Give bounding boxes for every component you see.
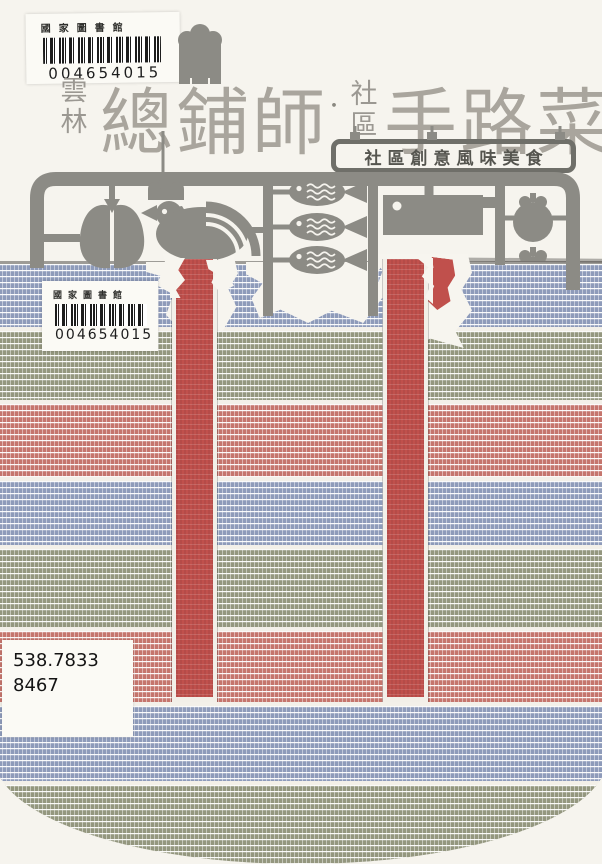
title-mid-char-2: 區: [348, 110, 380, 141]
title-prefix-vertical: 雲 林: [58, 76, 90, 138]
bag-strap-left: [172, 259, 217, 702]
cleaver-icon: [383, 186, 503, 235]
bag-stripe-stack: [0, 264, 602, 864]
subtitle-banner: 社區創意風味美食: [331, 139, 576, 173]
bag-stripe-green: [0, 785, 602, 864]
tomato-icon: [505, 193, 567, 242]
torn-paper-patch: [246, 262, 384, 323]
bag-stripe-blue: [0, 481, 602, 545]
call-number-line-2: 8467: [13, 673, 133, 698]
library-barcode-label-bag: 國家圖書館 004654015: [42, 281, 158, 351]
fish-icon: [273, 213, 367, 241]
title-separator-dot: ・: [325, 92, 343, 118]
bag-stripe-red: [0, 404, 602, 477]
pork-icon: [44, 186, 144, 268]
barcode: [43, 36, 161, 64]
title-mid-char-1: 社: [348, 79, 380, 110]
barcode-number: 004654015: [55, 327, 158, 343]
title-prefix-char-2: 林: [58, 107, 90, 138]
fish-icon: [273, 178, 367, 206]
title-mid-vertical: 社 區: [348, 79, 380, 141]
call-number-label: 538.7833 8467: [2, 640, 133, 737]
book-cover-scan: { "labels": { "library_top": { "institut…: [0, 0, 602, 836]
call-number-line-1: 538.7833: [13, 648, 133, 673]
title-main-first: 總鋪師: [100, 64, 328, 170]
library-name: 國家圖書館: [41, 18, 180, 35]
bag-stripe-green: [0, 549, 602, 627]
barcode: [55, 304, 147, 326]
title-prefix-char-1: 雲: [58, 76, 90, 107]
bag-strap-right: [383, 259, 428, 702]
woven-bag: [0, 264, 602, 864]
library-name: 國家圖書館: [53, 288, 158, 301]
